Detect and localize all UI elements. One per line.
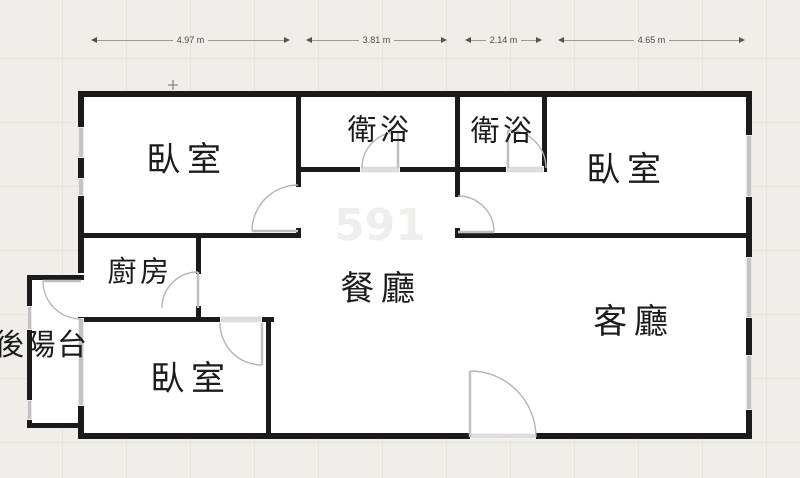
room-label-rear-balcony: 後陽台 [0,331,89,361]
wall [27,420,32,428]
wall [400,167,508,172]
window [746,355,752,410]
dimension-line [312,40,359,41]
dimension-line [471,40,486,41]
room-label-bedroom-top-left: 臥室 [146,143,228,177]
crosshair-icon [168,80,178,90]
room-label-bathroom-1: 衛浴 [348,116,413,145]
room-label-kitchen: 廚房 [108,258,173,287]
room-label-dining: 餐廳 [340,272,422,306]
wall [455,91,460,197]
dimension-segment: 4.65 m [555,35,748,45]
wall [746,197,752,257]
wall [542,91,547,172]
dim-arrow-left-icon [88,37,97,43]
dimension-line [97,40,173,41]
wall [78,317,220,322]
dimension-label: 3.81 m [359,36,395,45]
wall [78,233,301,238]
window [746,257,752,318]
wall [301,167,360,172]
wall [27,275,84,280]
watermark: 591 [330,198,430,254]
window [78,127,84,158]
wall [536,433,752,439]
window [78,178,84,196]
window [27,306,32,330]
dimension-segment: 3.81 m [303,35,450,45]
dimension-line [669,40,739,41]
wall [78,158,84,178]
dim-arrow-right-icon [284,37,293,43]
threshold [470,433,536,439]
dim-arrow-left-icon [555,37,564,43]
room-label-bathroom-2: 衛浴 [471,117,536,146]
room-label-bedroom-bottom: 臥室 [150,362,232,396]
dim-arrow-left-icon [462,37,471,43]
wall [27,423,84,428]
wall [78,433,470,439]
window [27,400,32,420]
dimension-label: 2.14 m [486,36,522,45]
dimension-label: 4.97 m [173,36,209,45]
dim-arrow-right-icon [441,37,450,43]
dim-arrow-right-icon [739,37,748,43]
room-label-living: 客廳 [593,305,675,339]
window [746,135,752,197]
wall [266,317,271,439]
dimension-line [521,40,536,41]
dimension-label: 4.65 m [634,36,670,45]
threshold [506,166,544,173]
wall [27,275,32,306]
threshold [360,166,400,173]
wall [746,410,752,439]
dimension-line [394,40,441,41]
wall [296,91,301,187]
wall [746,91,752,135]
room-label-bedroom-right: 臥室 [586,153,668,187]
dim-arrow-right-icon [536,37,545,43]
dimension-segment: 4.97 m [88,35,293,45]
dimension-line [564,40,634,41]
dim-arrow-left-icon [303,37,312,43]
dimension-segment: 2.14 m [462,35,545,45]
wall [78,91,84,127]
dimension-line [208,40,284,41]
threshold [220,316,262,323]
wall [455,233,752,238]
wall [78,91,752,97]
wall [196,238,201,274]
floor-plan: 4.97 m 3.81 m 2.14 m 4.65 m [0,0,800,478]
wall [746,318,752,355]
